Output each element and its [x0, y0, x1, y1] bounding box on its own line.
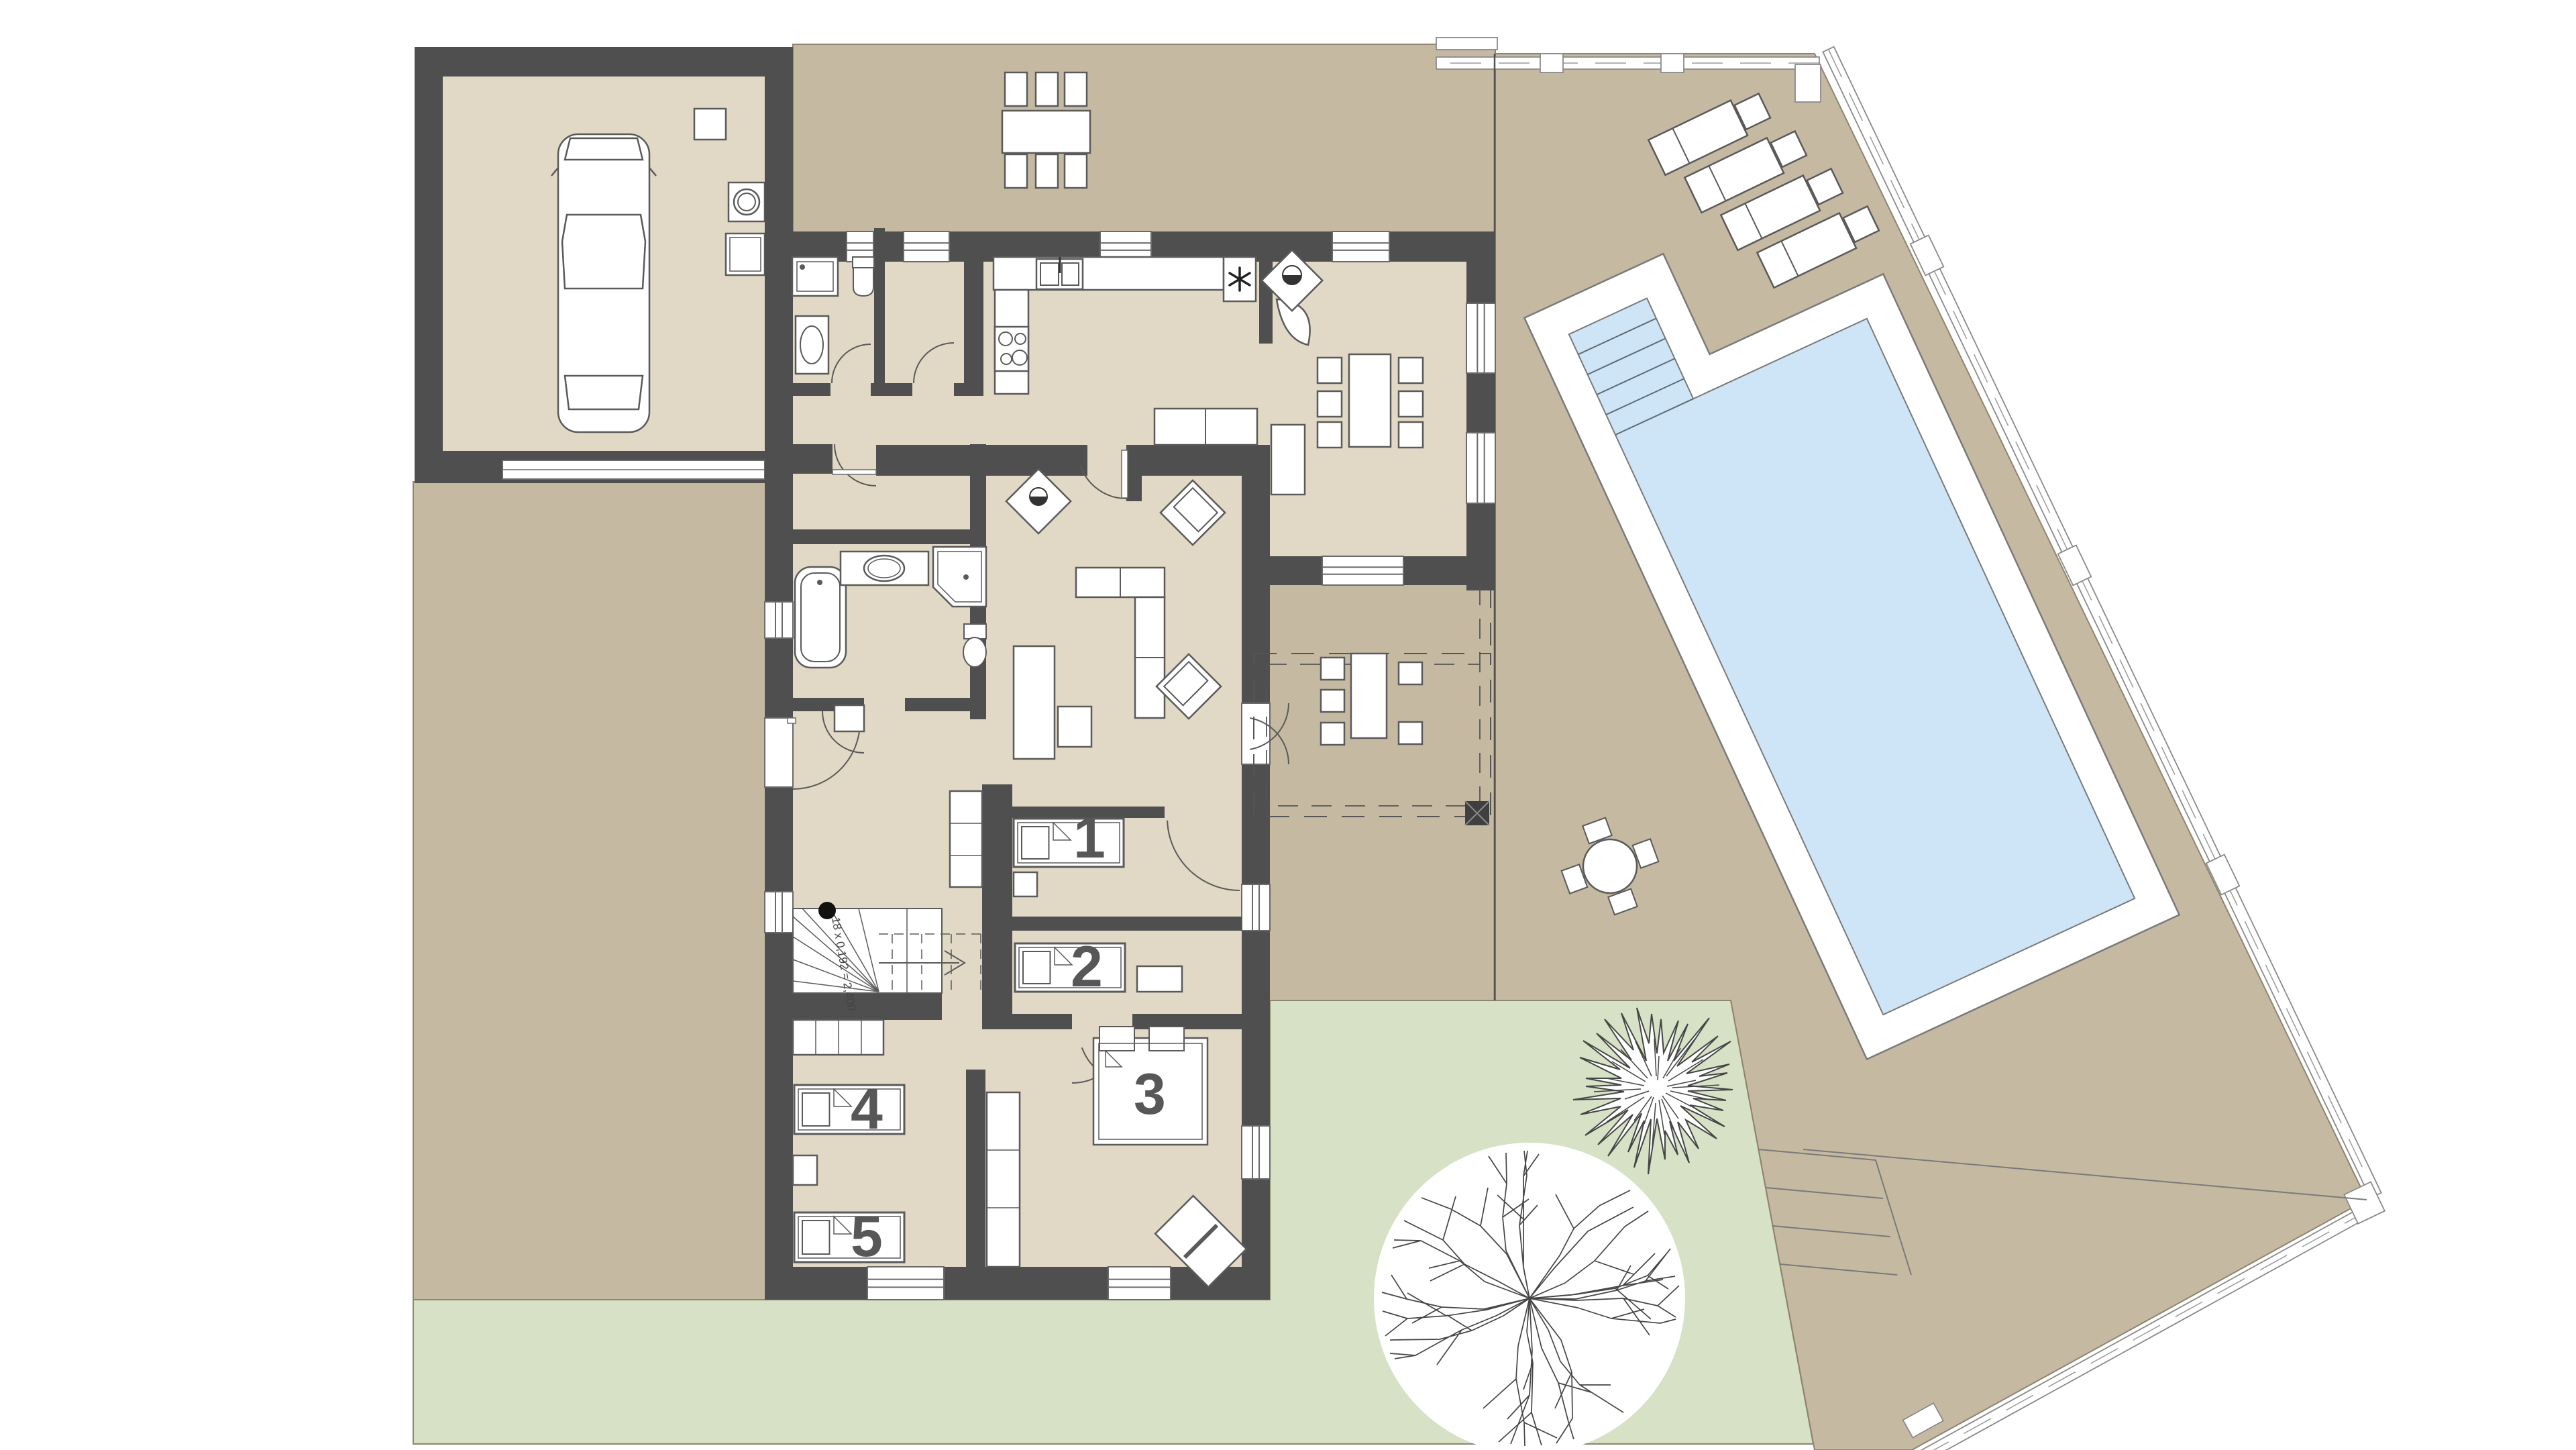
svg-text:3: 3 — [1134, 1062, 1166, 1127]
svg-text:1: 1 — [1073, 806, 1106, 870]
svg-text:4: 4 — [851, 1077, 883, 1141]
svg-text:2: 2 — [1071, 935, 1103, 999]
svg-text:5: 5 — [851, 1204, 883, 1269]
